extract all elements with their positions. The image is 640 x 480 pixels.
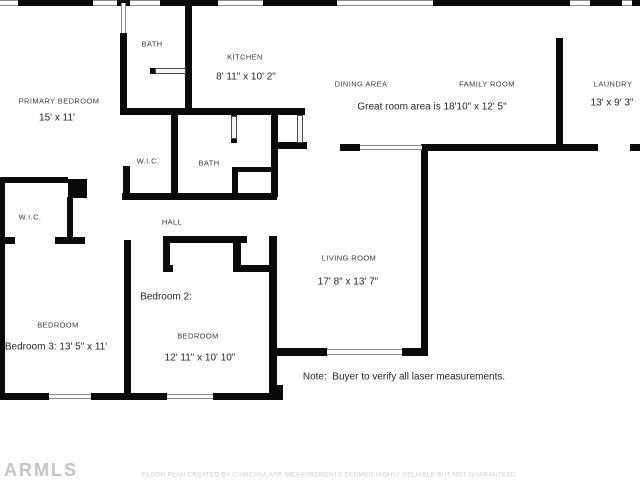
shower-wall xyxy=(232,167,238,195)
wall-segment xyxy=(340,144,360,151)
room-label-bath-top: BATH xyxy=(141,40,162,49)
wall-segment xyxy=(277,142,307,149)
wall-segment xyxy=(590,0,622,6)
door-marker xyxy=(155,68,186,74)
window-marker xyxy=(360,145,422,150)
window-marker xyxy=(622,0,632,6)
room-title-bedroom2: Bedroom 2: xyxy=(140,292,192,303)
room-label-living: LIVING ROOM xyxy=(322,254,376,263)
wall-segment xyxy=(556,38,563,147)
window-marker xyxy=(93,0,117,6)
wall-segment xyxy=(630,144,640,151)
window-marker xyxy=(218,0,263,6)
wall-segment xyxy=(271,108,278,197)
wall-segment xyxy=(91,393,167,400)
wall-segment xyxy=(120,33,127,110)
room-label-laundry: LAUNDRY xyxy=(594,80,633,89)
wall-segment xyxy=(124,240,131,393)
wall-segment xyxy=(185,6,192,110)
wall-segment xyxy=(269,236,277,400)
room-label-bath-mid: BATH xyxy=(198,159,219,168)
wall-segment xyxy=(122,193,277,200)
window-marker xyxy=(121,3,126,35)
room-label-wic-upper: W.I.C. xyxy=(137,157,160,166)
wall-segment xyxy=(433,0,570,6)
room-label-hall: HALL xyxy=(162,218,182,227)
room-label-primary: PRIMARY BEDROOM xyxy=(19,97,100,106)
wall-segment xyxy=(0,393,49,400)
wall-segment xyxy=(0,177,5,400)
wall-segment xyxy=(0,177,68,183)
window-marker xyxy=(337,0,433,6)
room-label-family: FAMILY ROOM xyxy=(459,80,515,89)
room-label-dining: DINING AREA xyxy=(335,80,388,89)
window-marker xyxy=(130,0,160,6)
wall-segment xyxy=(632,0,640,6)
room-dims-laundry: 13' x 9' 3" xyxy=(591,98,634,109)
buyer-note: Note: Buyer to verify all laser measurem… xyxy=(303,372,505,383)
room-dims-bedroom3: Bedroom 3: 13' 5" x 11' xyxy=(5,342,107,353)
window-marker xyxy=(327,349,402,355)
room-dims-living: 17' 8" x 13' 7" xyxy=(318,277,378,288)
wall-segment xyxy=(55,237,85,244)
room-label-bedroom2: BEDROOM xyxy=(177,332,219,341)
window-marker xyxy=(49,394,91,399)
window-marker xyxy=(167,394,213,399)
room-dims-kitchen: 8' 11" x 10' 2" xyxy=(216,72,276,83)
floorplan: BATH KITCHEN 8' 11" x 10' 2" DINING AREA… xyxy=(0,0,640,480)
window-marker xyxy=(570,0,590,6)
wall-segment xyxy=(68,179,87,198)
wall-segment xyxy=(18,0,93,6)
wall-segment xyxy=(171,113,178,197)
room-label-bedroom3: BEDROOM xyxy=(37,321,79,330)
shower-wall xyxy=(232,167,275,172)
wall-segment xyxy=(0,237,15,244)
room-label-kitchen: KITCHEN xyxy=(227,53,263,62)
door-marker xyxy=(231,116,237,139)
wall-segment xyxy=(270,385,283,400)
window-marker xyxy=(0,0,18,6)
wall-segment xyxy=(263,0,337,6)
armls-watermark: ARMLS xyxy=(4,460,78,480)
wall-segment xyxy=(277,348,327,356)
wall-segment xyxy=(422,144,598,151)
wall-segment xyxy=(120,108,305,115)
wall-segment xyxy=(421,144,428,356)
wall-segment xyxy=(233,265,273,272)
door-marker xyxy=(297,115,303,143)
footer-disclaimer: FLOOR PLAN CREATED BY CUBICASA APP. MEAS… xyxy=(142,472,518,479)
room-label-wic-left: W.I.C. xyxy=(19,213,42,222)
wall-segment xyxy=(163,265,173,272)
great-room-note: Great room area is 18'10" x 12' 5" xyxy=(357,102,506,113)
room-dims-bedroom2: 12' 11" x 10' 10" xyxy=(165,353,236,364)
door-marker xyxy=(231,139,237,143)
room-dims-primary: 15' x 11' xyxy=(39,113,75,124)
wall-segment xyxy=(402,348,428,356)
